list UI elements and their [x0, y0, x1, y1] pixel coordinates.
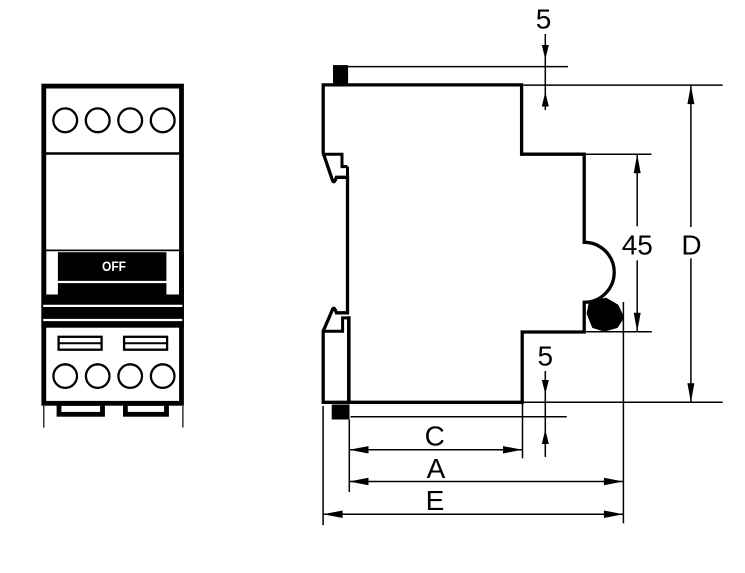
- svg-text:C: C: [425, 420, 445, 451]
- svg-text:A: A: [427, 453, 446, 484]
- svg-text:45: 45: [622, 230, 653, 261]
- svg-text:OFF: OFF: [102, 258, 126, 274]
- svg-text:E: E: [426, 485, 445, 516]
- svg-text:D: D: [681, 230, 701, 261]
- svg-text:5: 5: [538, 341, 554, 372]
- svg-text:5: 5: [536, 4, 552, 35]
